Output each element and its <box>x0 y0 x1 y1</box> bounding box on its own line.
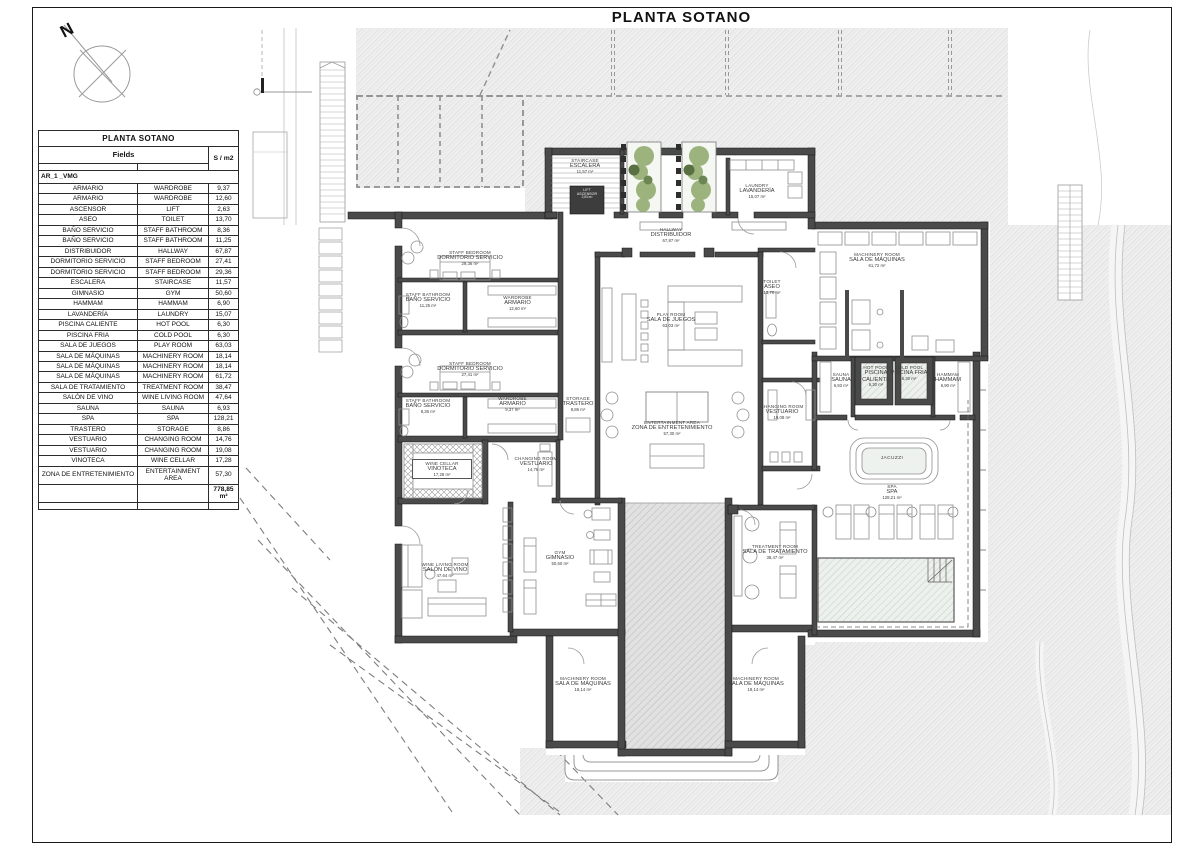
room-name-en: WARDROBE <box>138 194 209 204</box>
room-name-es: PISCINA FRIA <box>39 330 138 340</box>
room-name-es: BAÑO SERVICIO <box>39 225 138 235</box>
table-row: SALA DE MÁQUINAS MACHINERY ROOM 61,72 <box>39 372 239 382</box>
room-name-es: SALA DE JUEGOS <box>39 341 138 351</box>
room-area: 19,08 <box>209 445 239 455</box>
room-area: 12,60 <box>209 194 239 204</box>
room-name-es: DORMITORIO SERVICIO <box>39 257 138 267</box>
table-row: SALA DE JUEGOS PLAY ROOM 63,03 <box>39 341 239 351</box>
room-area: 6,93 <box>209 403 239 413</box>
group-label: AR_1 _VMG <box>39 171 239 184</box>
room-area: 57,30 <box>209 466 239 484</box>
table-row: ASEO TOILET 13,70 <box>39 215 239 225</box>
table-row: SAUNA SAUNA 6,93 <box>39 403 239 413</box>
table-row: DISTRIBUIDOR HALLWAY 67,87 <box>39 246 239 256</box>
room-area: 8,86 <box>209 424 239 434</box>
table-row: BAÑO SERVICIO STAFF BATHROOM 8,36 <box>39 225 239 235</box>
room-name-en: STAFF BATHROOM <box>138 225 209 235</box>
room-name-en: CHANGING ROOM <box>138 435 209 445</box>
table-row: ASCENSOR LIFT 2,63 <box>39 204 239 214</box>
room-name-en: GYM <box>138 288 209 298</box>
lift-shaft <box>570 186 604 214</box>
table-row: SALÓN DE VINO WINE LIVING ROOM 47,64 <box>39 393 239 403</box>
table-row: HAMMAM HAMMAM 6,90 <box>39 299 239 309</box>
site-stair-right <box>1058 185 1082 300</box>
table-row: VINOTECA WINE CELLAR 17,28 <box>39 456 239 466</box>
table-row: GIMNASIO GYM 50,60 <box>39 288 239 298</box>
room-name-en: CHANGING ROOM <box>138 445 209 455</box>
room-name-en: WARDROBE <box>138 184 209 194</box>
drawing-sheet: N PLANTA SOTANO PLANTA SOTANO Fields S /… <box>0 0 1200 848</box>
room-name-en: HAMMAM <box>138 299 209 309</box>
room-area: 14,76 <box>209 435 239 445</box>
north-label: N <box>57 19 77 42</box>
room-name-es: HAMMAM <box>39 299 138 309</box>
area-rows: ARMARIO WARDROBE 9,37 ARMARIO WARDROBE 1… <box>39 184 239 485</box>
room-area: 13,70 <box>209 215 239 225</box>
spacer-cell <box>39 164 138 171</box>
room-area: 6,90 <box>209 299 239 309</box>
room-name-en: STAFF BEDROOM <box>138 257 209 267</box>
area-header: S / m2 <box>209 147 239 171</box>
room-name-es: ESCALERA <box>39 278 138 288</box>
table-title: PLANTA SOTANO <box>39 131 239 147</box>
room-area: 61,72 <box>209 372 239 382</box>
room-area: 29,36 <box>209 267 239 277</box>
table-row: VESTUARIO CHANGING ROOM 14,76 <box>39 435 239 445</box>
room-area: 15,07 <box>209 309 239 319</box>
room-name-en: SPA <box>138 414 209 424</box>
table-row: LAVANDERÍA LAUNDRY 15,07 <box>39 309 239 319</box>
room-area: 6,30 <box>209 320 239 330</box>
room-area: 47,64 <box>209 393 239 403</box>
table-row: ESCALERA STAIRCASE 11,57 <box>39 278 239 288</box>
room-area: 9,37 <box>209 184 239 194</box>
room-name-es: BAÑO SERVICIO <box>39 236 138 246</box>
table-row: ARMARIO WARDROBE 9,37 <box>39 184 239 194</box>
table-row: ARMARIO WARDROBE 12,60 <box>39 194 239 204</box>
area-table: PLANTA SOTANO Fields S / m2 AR_1 _VMG AR… <box>38 130 239 510</box>
table-row: PISCINA CALIENTE HOT POOL 6,30 <box>39 320 239 330</box>
table-row: DORMITORIO SERVICIO STAFF BEDROOM 27,41 <box>39 257 239 267</box>
room-name-es: SALÓN DE VINO <box>39 393 138 403</box>
sheet-title: PLANTA SOTANO <box>355 9 1008 26</box>
room-name-en: COLD POOL <box>138 330 209 340</box>
table-row: BAÑO SERVICIO STAFF BATHROOM 11,25 <box>39 236 239 246</box>
room-area: 50,60 <box>209 288 239 298</box>
room-name-es: VESTUARIO <box>39 445 138 455</box>
room-name-en: HOT POOL <box>138 320 209 330</box>
spa-pool <box>818 558 954 622</box>
table-row: VESTUARIO CHANGING ROOM 19,08 <box>39 445 239 455</box>
table-row: SALA DE MÁQUINAS MACHINERY ROOM 18,14 <box>39 351 239 361</box>
room-name-en: HALLWAY <box>138 246 209 256</box>
room-name-es: ZONA DE ENTRETENIMIENTO <box>39 466 138 484</box>
room-name-es: ASEO <box>39 215 138 225</box>
room-name-en: LIFT <box>138 204 209 214</box>
spacer-cell <box>138 502 209 509</box>
spacer-cell <box>138 484 209 502</box>
room-name-es: GIMNASIO <box>39 288 138 298</box>
room-name-es: SPA <box>39 414 138 424</box>
room-area: 18,14 <box>209 351 239 361</box>
room-name-es: PISCINA CALIENTE <box>39 320 138 330</box>
room-name-es: SALA DE MÁQUINAS <box>39 351 138 361</box>
spacer-cell <box>138 164 209 171</box>
room-name-en: MACHINERY ROOM <box>138 372 209 382</box>
room-name-en: ENTERTAINMENT AREA <box>138 466 209 484</box>
room-name-en: MACHINERY ROOM <box>138 361 209 371</box>
table-row: PISCINA FRIA COLD POOL 6,30 <box>39 330 239 340</box>
room-area: 11,25 <box>209 236 239 246</box>
total-area: 778,85 m² <box>209 484 239 502</box>
room-name-es: VESTUARIO <box>39 435 138 445</box>
room-area: 38,47 <box>209 382 239 392</box>
room-name-en: TOILET <box>138 215 209 225</box>
table-row: TRASTERO STORAGE 8,86 <box>39 424 239 434</box>
room-name-en: MACHINERY ROOM <box>138 351 209 361</box>
room-area: 8,36 <box>209 225 239 235</box>
room-name-es: SALA DE MÁQUINAS <box>39 372 138 382</box>
room-name-en: SAUNA <box>138 403 209 413</box>
table-row: SPA SPA 128,21 <box>39 414 239 424</box>
spacer-cell <box>39 502 138 509</box>
room-name-es: SALA DE TRATAMIENTO <box>39 382 138 392</box>
room-area: 2,63 <box>209 204 239 214</box>
room-name-en: WINE CELLAR <box>138 456 209 466</box>
fields-header: Fields <box>39 147 209 164</box>
spacer-cell <box>209 502 239 509</box>
room-name-en: STORAGE <box>138 424 209 434</box>
ramp-shaft <box>623 503 727 753</box>
room-area: 27,41 <box>209 257 239 267</box>
table-row: DORMITORIO SERVICIO STAFF BEDROOM 29,36 <box>39 267 239 277</box>
room-name-es: LAVANDERÍA <box>39 309 138 319</box>
room-name-es: ASCENSOR <box>39 204 138 214</box>
room-name-es: ARMARIO <box>39 194 138 204</box>
table-row: SALA DE MÁQUINAS MACHINERY ROOM 18,14 <box>39 361 239 371</box>
north-compass: N <box>40 12 165 127</box>
room-name-en: STAIRCASE <box>138 278 209 288</box>
room-name-es: SAUNA <box>39 403 138 413</box>
room-name-es: SALA DE MÁQUINAS <box>39 361 138 371</box>
room-name-es: DORMITORIO SERVICIO <box>39 267 138 277</box>
room-area: 17,28 <box>209 456 239 466</box>
room-name-en: LAUNDRY <box>138 309 209 319</box>
spacer-cell <box>39 484 138 502</box>
room-name-es: ARMARIO <box>39 184 138 194</box>
room-name-es: DISTRIBUIDOR <box>39 246 138 256</box>
room-name-en: STAFF BATHROOM <box>138 236 209 246</box>
room-area: 18,14 <box>209 361 239 371</box>
room-name-es: TRASTERO <box>39 424 138 434</box>
site-stair-left <box>253 28 345 352</box>
room-name-es: VINOTECA <box>39 456 138 466</box>
room-name-en: STAFF BEDROOM <box>138 267 209 277</box>
room-area: 67,87 <box>209 246 239 256</box>
table-row: SALA DE TRATAMIENTO TREATMENT ROOM 38,47 <box>39 382 239 392</box>
room-area: 6,30 <box>209 330 239 340</box>
room-area: 128,21 <box>209 414 239 424</box>
table-row: ZONA DE ENTRETENIMIENTO ENTERTAINMENT AR… <box>39 466 239 484</box>
room-name-en: PLAY ROOM <box>138 341 209 351</box>
room-name-en: TREATMENT ROOM <box>138 382 209 392</box>
room-name-en: WINE LIVING ROOM <box>138 393 209 403</box>
room-area: 63,03 <box>209 341 239 351</box>
room-area: 11,57 <box>209 278 239 288</box>
